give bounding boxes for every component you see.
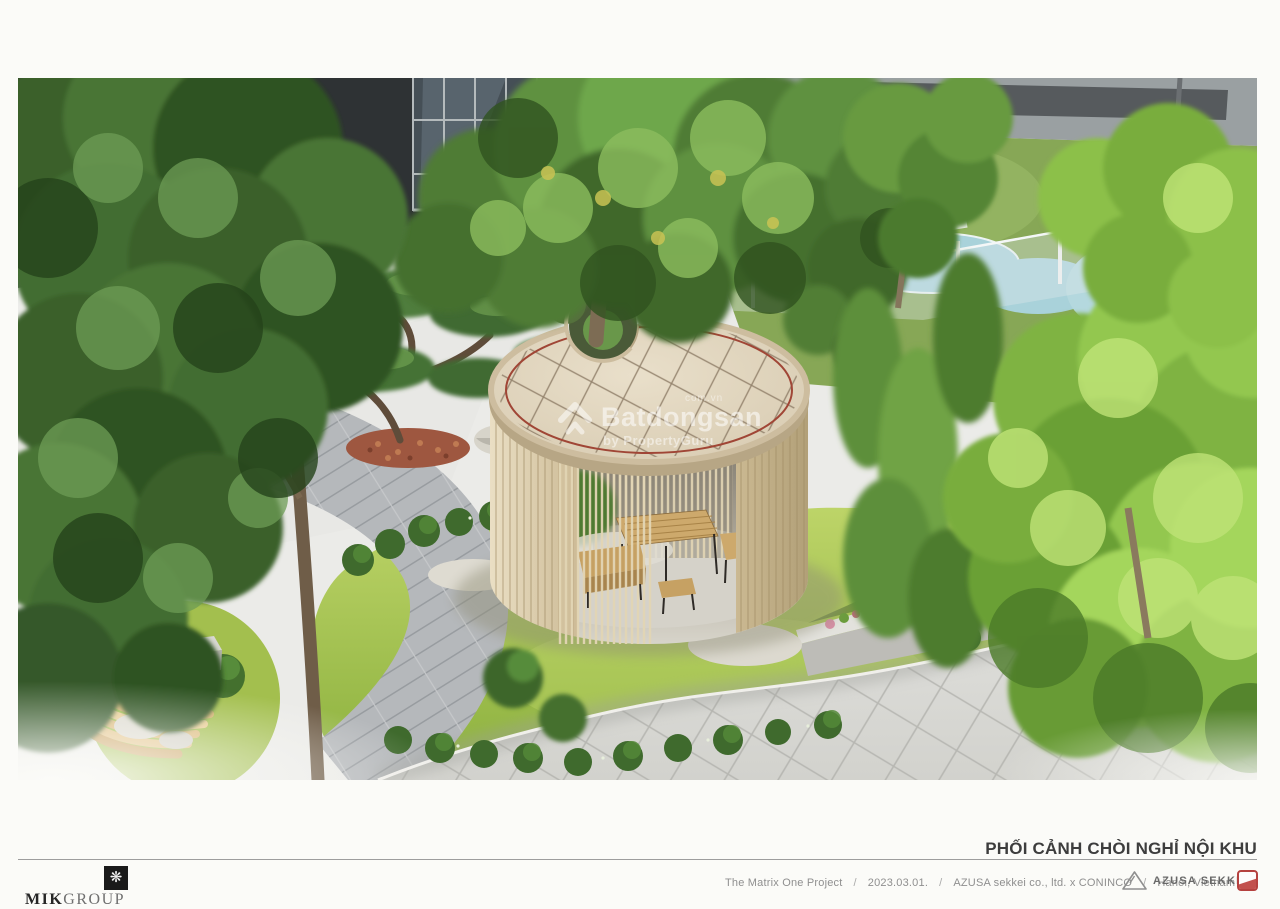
divider-line [18, 859, 1257, 860]
mik-logo-bold: MIK [25, 891, 63, 908]
photo-fade-bottom-right [997, 710, 1257, 780]
page-title: PHỐI CẢNH CHÒI NGHỈ NỘI KHU [985, 839, 1257, 859]
credit-separator: / [854, 877, 857, 889]
credit-firms: AZUSA sekkei co., ltd. x CONINCO [953, 877, 1132, 889]
azusa-triangle-icon [1121, 870, 1148, 891]
mik-logo-mark-icon: ❋ [104, 866, 128, 890]
azusa-sekkei-logo: AZUSA SEKKEI [1121, 870, 1249, 891]
rendering-image: com.vn Batdongsan by PropertyGuru [18, 78, 1257, 780]
mik-logo-light: GROUP [63, 891, 125, 908]
credit-separator: / [939, 877, 942, 889]
rendering-scene [18, 78, 1257, 780]
azusa-logo-text: AZUSA SEKKEI [1153, 875, 1249, 887]
presentation-page: { "page": { "background": "#fbfbf8", "wi… [0, 0, 1280, 906]
mik-logo-text: MIKGROUP [25, 891, 125, 909]
credit-project: The Matrix One Project [725, 877, 843, 889]
credit-date: 2023.03.01. [868, 877, 928, 889]
mulch-bed [346, 428, 470, 468]
photo-fade-bottom-left [18, 680, 448, 780]
red-stamp-icon [1237, 870, 1258, 891]
